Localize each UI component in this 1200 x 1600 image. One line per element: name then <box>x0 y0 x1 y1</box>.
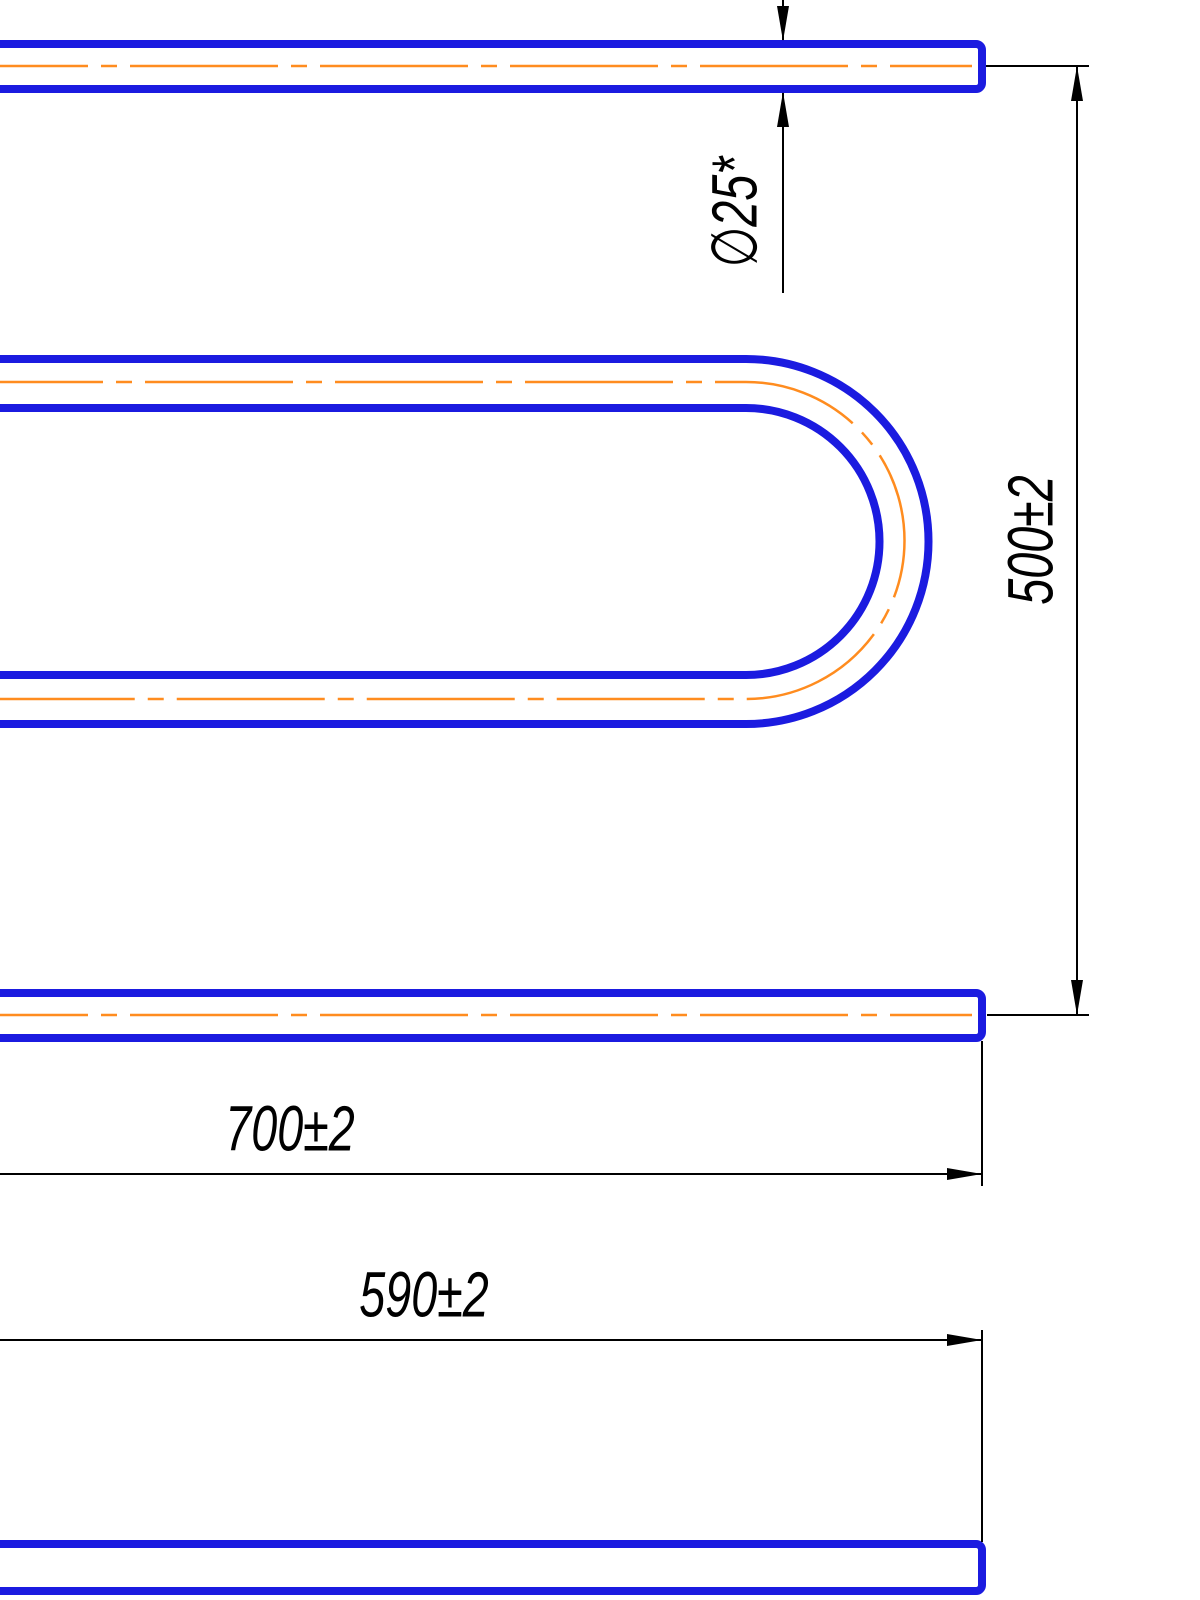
centerlines <box>0 66 972 1015</box>
arrow-length-bottom-right <box>947 1334 982 1346</box>
centerline-pipe-u <box>0 382 905 699</box>
dimension-lines <box>0 0 1089 1542</box>
technical-drawing: ∅25* 500±2 700±2 590±2 <box>0 0 1200 1600</box>
label-length-top: 700±2 <box>225 1092 355 1164</box>
arrow-height-up <box>1071 66 1083 101</box>
label-height: 500±2 <box>994 475 1066 605</box>
arrow-length-top-right <box>947 1168 982 1180</box>
arrow-diameter-up <box>777 92 789 127</box>
label-diameter: ∅25* <box>698 155 770 268</box>
dimension-labels: ∅25* 500±2 700±2 590±2 <box>225 155 1066 1330</box>
drawing-stage: ∅25* 500±2 700±2 590±2 <box>0 0 1200 1600</box>
arrow-height-down <box>1071 980 1083 1015</box>
arrow-diameter-down <box>777 6 789 41</box>
pipe-outlines <box>0 44 982 1591</box>
pipe-bottom <box>0 1544 982 1591</box>
pipe-u-inner-wall <box>0 408 880 675</box>
label-length-bottom: 590±2 <box>359 1258 489 1330</box>
dimension-arrowheads <box>777 6 1083 1346</box>
